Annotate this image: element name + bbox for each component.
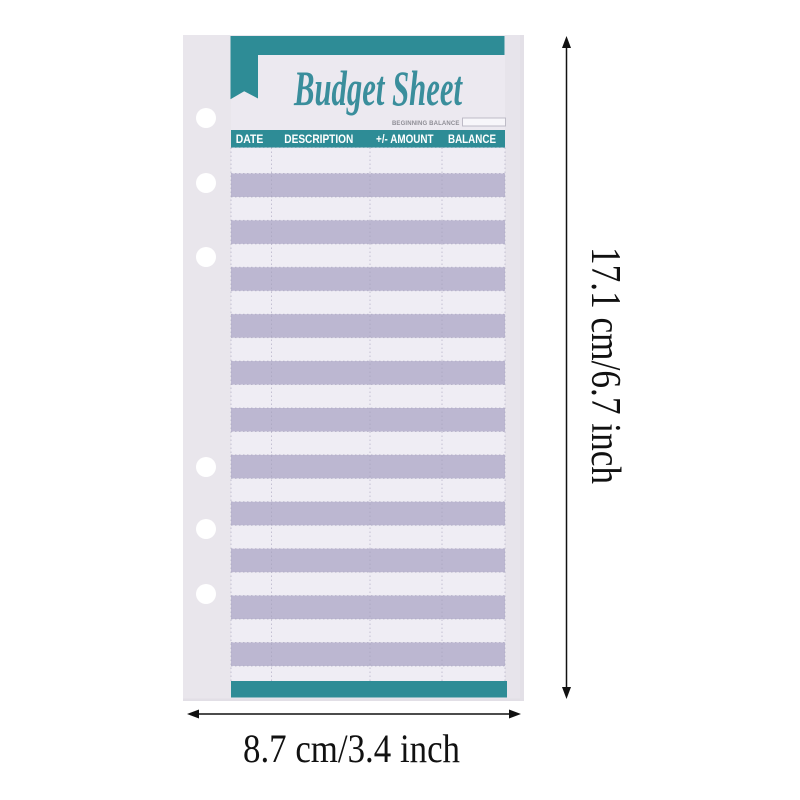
svg-text:17.1 cm/6.7 inch: 17.1 cm/6.7 inch <box>582 247 628 484</box>
svg-text:DATE: DATE <box>236 132 264 146</box>
svg-text:BALANCE: BALANCE <box>448 132 496 146</box>
svg-text:8.7 cm/3.4 inch: 8.7 cm/3.4 inch <box>243 726 460 771</box>
svg-text:Budget Sheet: Budget Sheet <box>293 60 463 116</box>
svg-text:DESCRIPTION: DESCRIPTION <box>284 132 353 146</box>
svg-text:BEGINNING BALANCE: BEGINNING BALANCE <box>392 121 460 127</box>
svg-text:+/- AMOUNT: +/- AMOUNT <box>376 132 434 146</box>
